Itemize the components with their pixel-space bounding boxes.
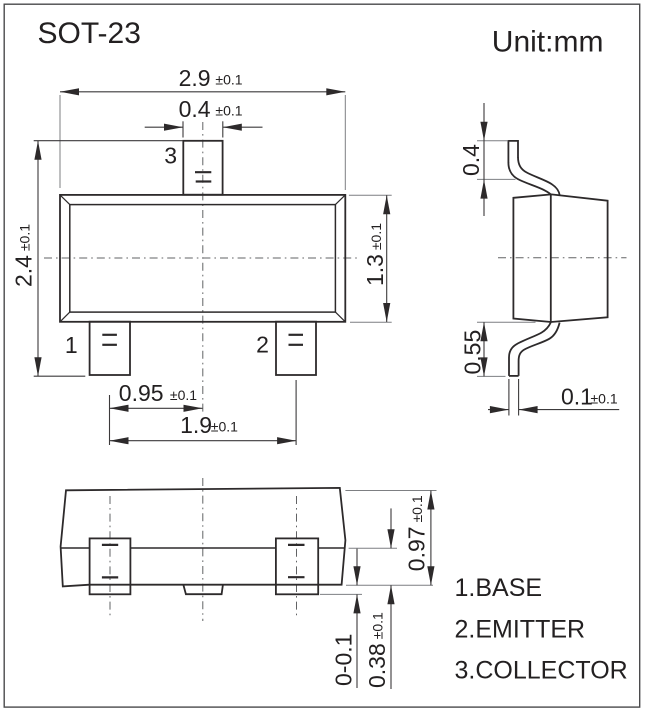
svg-text:Unit:mm: Unit:mm	[492, 26, 604, 59]
svg-text:1: 1	[65, 332, 78, 358]
svg-text:±0.1: ±0.1	[591, 391, 618, 407]
svg-text:3: 3	[164, 143, 177, 169]
svg-text:±0.1: ±0.1	[170, 387, 197, 403]
svg-text:0.4: 0.4	[179, 96, 211, 122]
svg-text:1.BASE: 1.BASE	[455, 574, 543, 602]
svg-text:0.1: 0.1	[561, 383, 593, 409]
svg-text:2.9: 2.9	[179, 65, 211, 91]
svg-text:0.4: 0.4	[458, 144, 484, 176]
svg-text:0-0.1: 0-0.1	[331, 634, 357, 686]
svg-text:SOT-23: SOT-23	[38, 17, 141, 50]
svg-text:±0.1: ±0.1	[211, 419, 238, 435]
svg-text:3.COLLECTOR: 3.COLLECTOR	[455, 657, 628, 685]
svg-text:0.55: 0.55	[460, 330, 486, 375]
svg-text:1.9: 1.9	[180, 412, 212, 438]
svg-text:±0.1: ±0.1	[215, 72, 242, 88]
svg-text:0.95: 0.95	[119, 380, 164, 406]
svg-text:2.EMITTER: 2.EMITTER	[455, 616, 586, 644]
svg-text:±0.1: ±0.1	[215, 103, 242, 119]
svg-text:2: 2	[256, 332, 269, 358]
